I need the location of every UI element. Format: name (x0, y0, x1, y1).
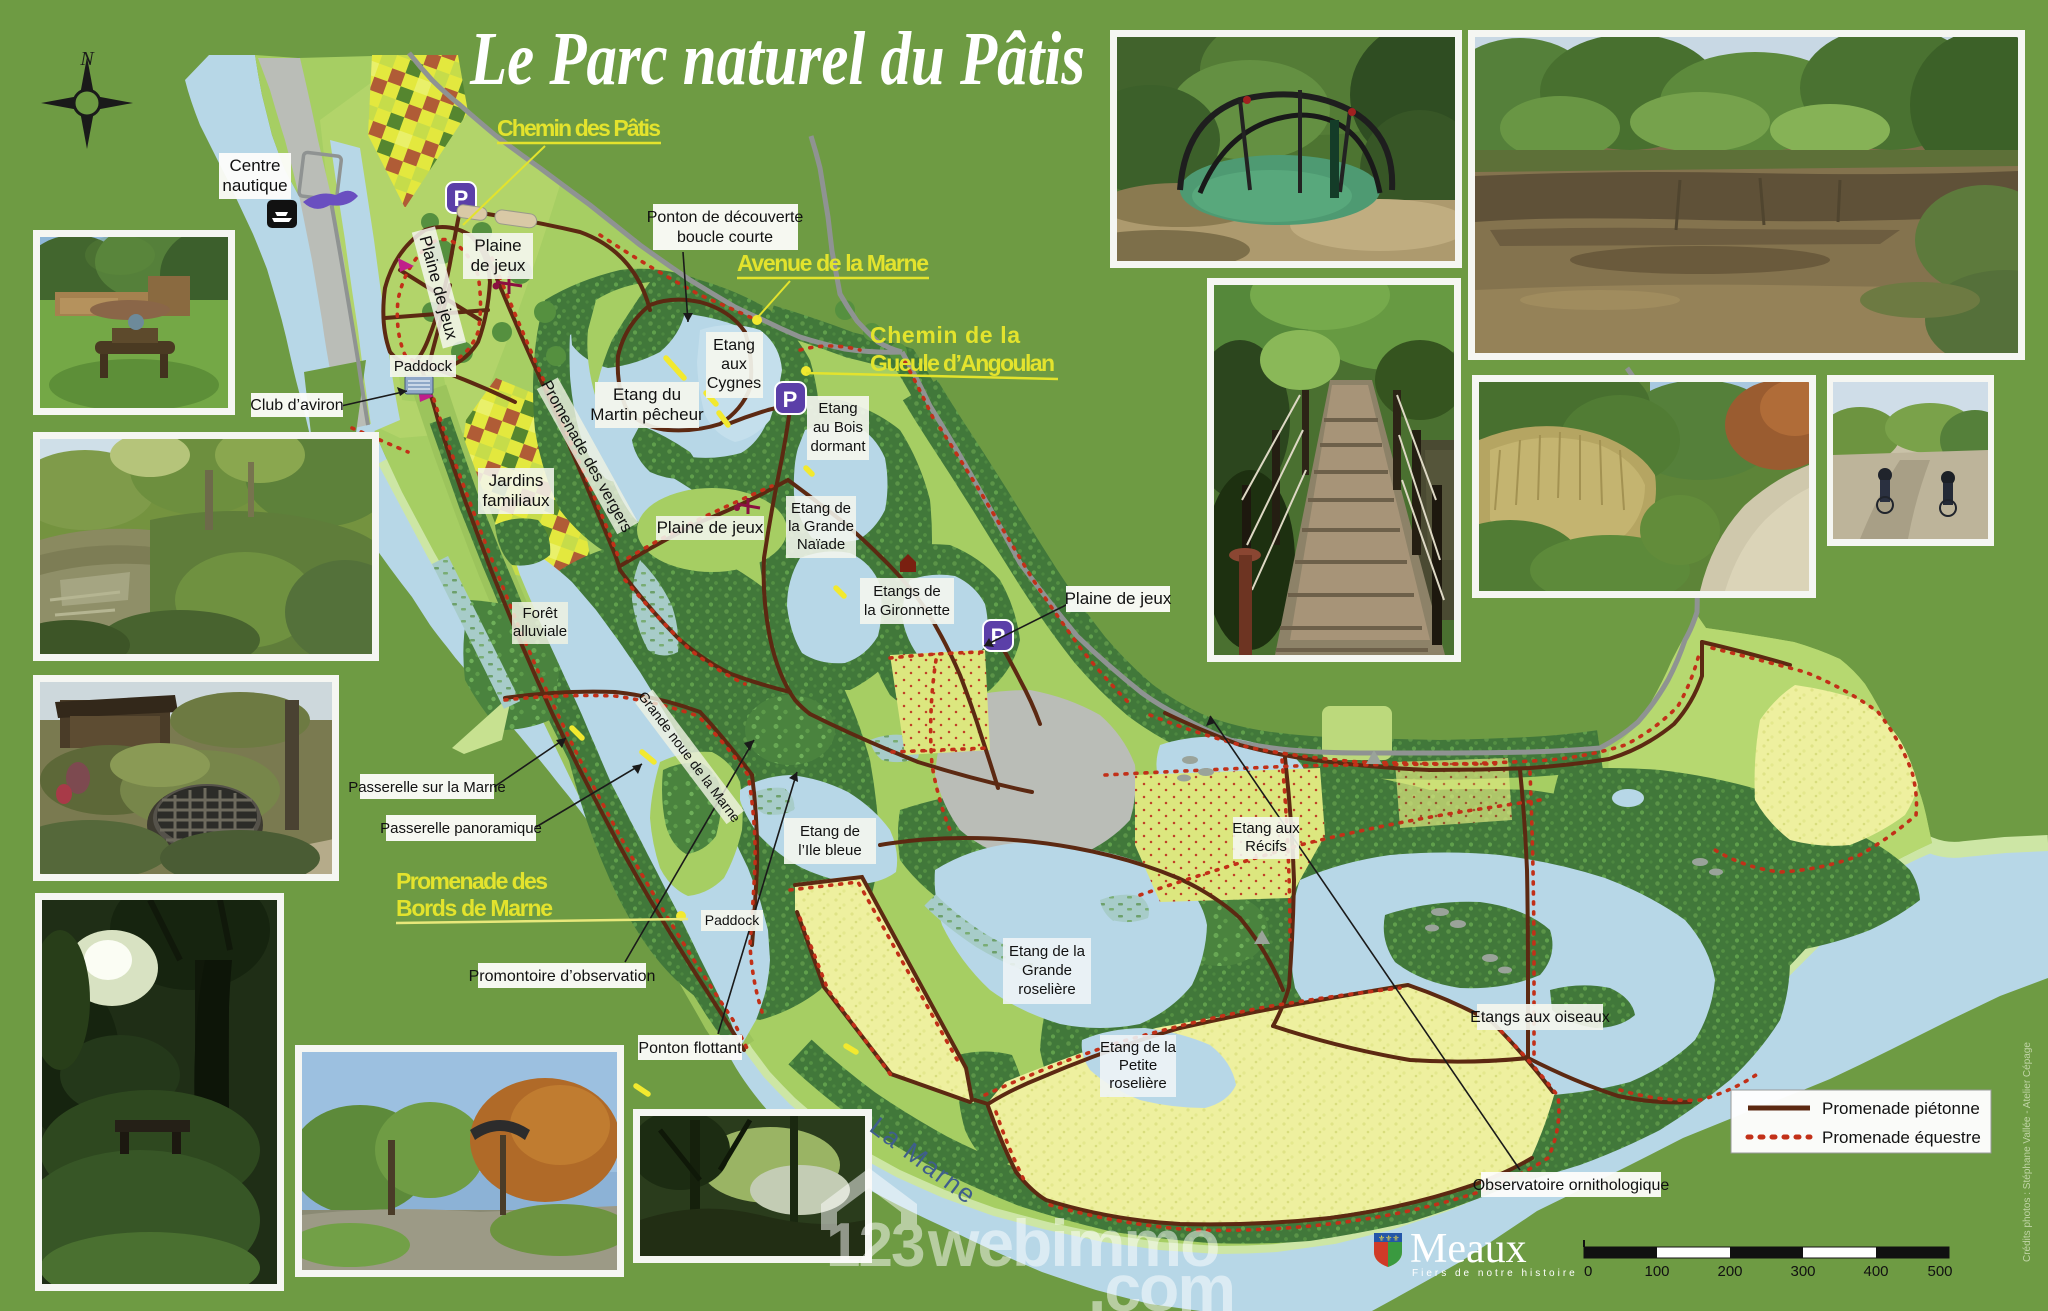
svg-text:Etang de la: Etang de la (1009, 943, 1086, 960)
svg-text:Crédits photos : Stéphane Vall: Crédits photos : Stéphane Vallée - Ateli… (2022, 1042, 2033, 1262)
svg-text:dormant: dormant (810, 438, 866, 455)
svg-text:Jardins: Jardins (489, 471, 544, 490)
svg-text:Chemin de la: Chemin de la (870, 322, 1020, 348)
svg-text:Etang de: Etang de (800, 823, 860, 840)
svg-text:la Grande: la Grande (788, 518, 854, 535)
svg-text:Gueule d’Angoulan: Gueule d’Angoulan (870, 350, 1055, 376)
svg-text:Meaux: Meaux (1410, 1226, 1527, 1272)
svg-text:Etangs de: Etangs de (873, 583, 941, 600)
svg-text:Paddock: Paddock (705, 912, 760, 928)
svg-text:Plaine: Plaine (474, 236, 521, 255)
svg-text:Etang du: Etang du (613, 385, 681, 404)
svg-text:400: 400 (1863, 1263, 1888, 1280)
svg-text:⚜⚜⚜: ⚜⚜⚜ (1378, 1234, 1400, 1243)
svg-text:Club d’aviron: Club d’aviron (250, 397, 343, 414)
svg-text:P: P (783, 387, 798, 412)
svg-text:aux: aux (721, 356, 747, 373)
svg-text:Promenade équestre: Promenade équestre (1822, 1128, 1981, 1147)
svg-text:Petite: Petite (1119, 1057, 1157, 1074)
svg-text:roselière: roselière (1018, 981, 1076, 998)
svg-text:Forêt: Forêt (522, 605, 558, 622)
svg-text:Promenade piétonne: Promenade piétonne (1822, 1099, 1980, 1118)
svg-text:Passerelle panoramique: Passerelle panoramique (380, 820, 542, 837)
svg-text:Etangs aux oiseaux: Etangs aux oiseaux (1470, 1009, 1610, 1026)
svg-text:roselière: roselière (1109, 1075, 1167, 1092)
svg-text:Centre: Centre (229, 156, 280, 175)
svg-text:boucle courte: boucle courte (677, 229, 773, 246)
svg-text:100: 100 (1644, 1263, 1669, 1280)
svg-text:Grande: Grande (1022, 962, 1072, 979)
svg-text:Plaine de jeux: Plaine de jeux (657, 518, 764, 537)
svg-text:alluviale: alluviale (513, 623, 567, 640)
svg-text:123: 123 (826, 1211, 924, 1280)
svg-text:Récifs: Récifs (1245, 838, 1287, 855)
svg-text:Etang: Etang (818, 400, 857, 417)
svg-text:Naïade: Naïade (797, 536, 845, 553)
svg-text:Plaine de jeux: Plaine de jeux (1065, 589, 1172, 608)
svg-text:Etang aux: Etang aux (1232, 820, 1300, 837)
svg-text:nautique: nautique (222, 176, 287, 195)
svg-text:200: 200 (1717, 1263, 1742, 1280)
svg-text:Chemin des Pâtis: Chemin des Pâtis (497, 115, 661, 141)
svg-text:0: 0 (1584, 1263, 1592, 1280)
svg-text:familiaux: familiaux (482, 491, 550, 510)
svg-text:Etang de la: Etang de la (1100, 1039, 1177, 1056)
svg-text:Promenade des: Promenade des (396, 868, 548, 894)
svg-text:Bords de Marne: Bords de Marne (396, 895, 553, 921)
svg-text:Observatoire ornithologique: Observatoire ornithologique (1473, 1177, 1670, 1194)
svg-text:500: 500 (1927, 1263, 1952, 1280)
svg-text:Fiers de notre histoire: Fiers de notre histoire (1412, 1268, 1578, 1279)
svg-text:la Gironnette: la Gironnette (864, 602, 950, 619)
svg-text:Martin pêcheur: Martin pêcheur (590, 405, 704, 424)
svg-text:Etang de: Etang de (791, 500, 851, 517)
svg-text:.com: .com (1088, 1251, 1234, 1311)
svg-text:Ponton de découverte: Ponton de découverte (647, 209, 804, 226)
svg-text:de jeux: de jeux (471, 256, 526, 275)
svg-text:Avenue de la Marne: Avenue de la Marne (737, 250, 929, 276)
svg-text:300: 300 (1790, 1263, 1815, 1280)
svg-text:au Bois: au Bois (813, 419, 863, 436)
svg-text:Passerelle sur la Marne: Passerelle sur la Marne (348, 779, 506, 796)
svg-text:Cygnes: Cygnes (707, 375, 761, 392)
svg-text:Ponton flottant: Ponton flottant (638, 1040, 742, 1057)
svg-text:Etang: Etang (713, 337, 755, 354)
svg-text:Le Parc naturel du Pâtis: Le Parc naturel du Pâtis (469, 17, 1085, 101)
svg-text:l’Ile bleue: l’Ile bleue (798, 842, 861, 859)
svg-text:Promontoire d’observation: Promontoire d’observation (469, 968, 656, 985)
svg-text:Paddock: Paddock (394, 358, 453, 375)
